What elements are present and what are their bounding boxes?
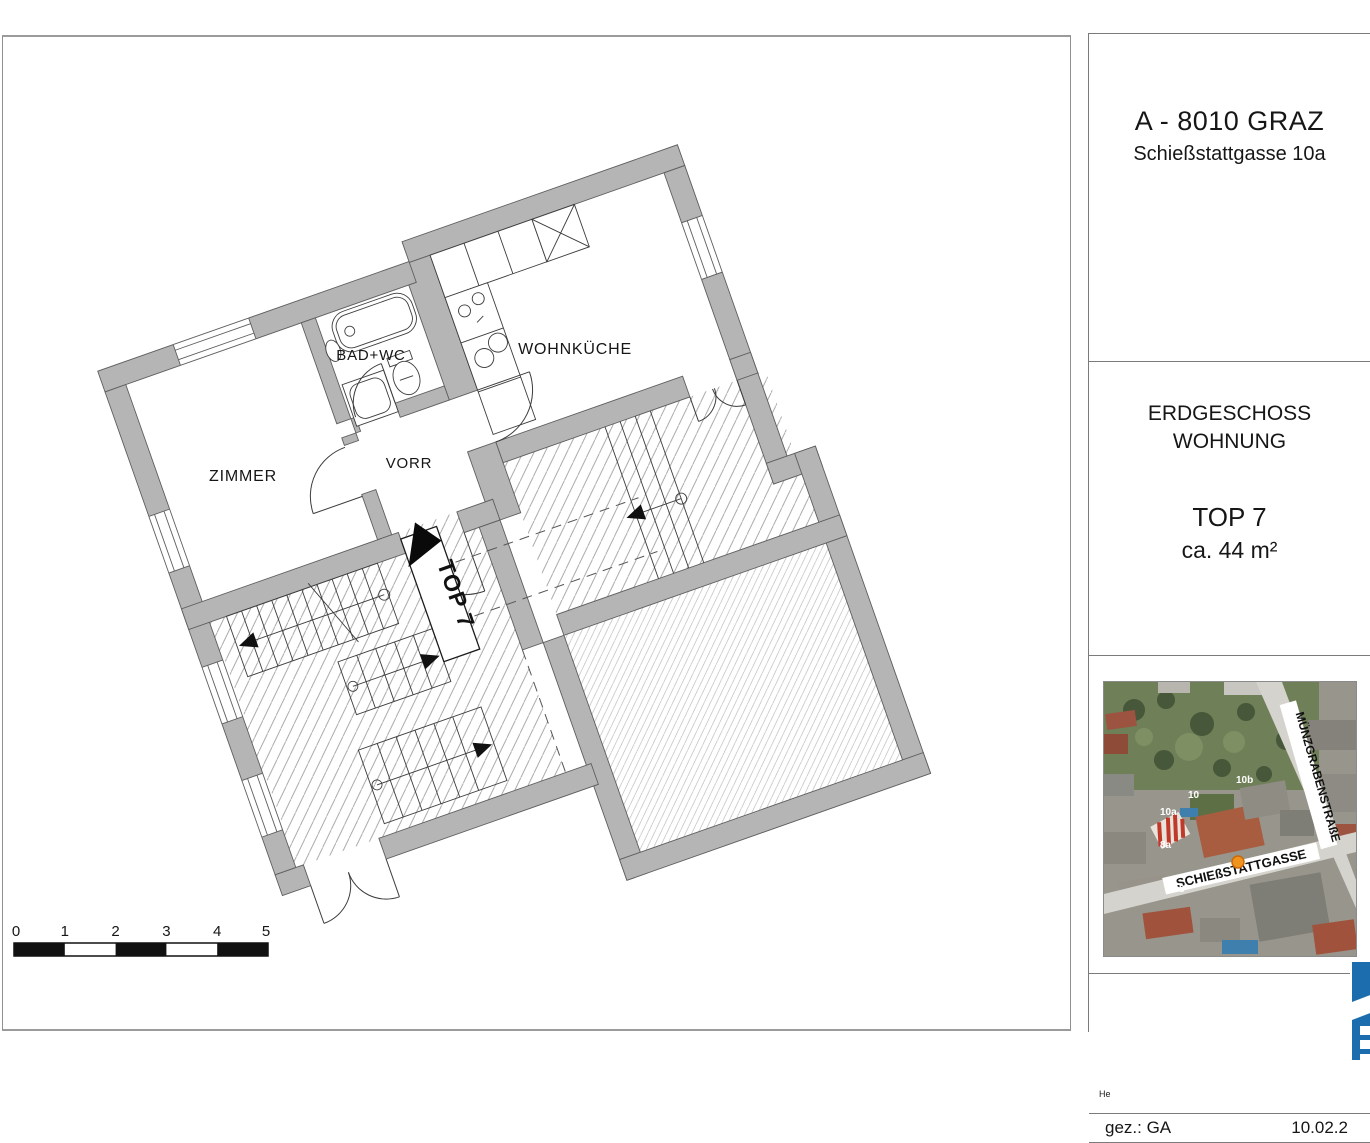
address-city: A - 8010 GRAZ	[1089, 106, 1370, 137]
map-number-10b: 10b	[1236, 775, 1253, 786]
map-number-10a: 10a	[1160, 807, 1177, 818]
date-label: 10.02.2	[1291, 1118, 1348, 1138]
address-street: Schießstattgasse 10a	[1089, 143, 1370, 166]
unit-info-section: ERDGESCHOSS WOHNUNG TOP 7 ca. 44 m²	[1089, 402, 1370, 656]
map-number-10: 10	[1188, 790, 1200, 801]
scale-tick-1: 1	[61, 923, 69, 940]
floor-label: ERDGESCHOSS	[1089, 402, 1370, 426]
scale-tick-2: 2	[111, 923, 119, 940]
scale-tick-5: 5	[262, 923, 270, 940]
signature-row: gez.: GA 10.02.2	[1089, 1114, 1370, 1143]
map-number-8a: 8a	[1160, 840, 1172, 851]
floorplan-document: { "title_block": { "address_line1": "A -…	[0, 0, 1370, 1060]
company-logo	[1350, 962, 1370, 1060]
room-label-zimmer: ZIMMER	[209, 468, 277, 485]
location-map-section: SCHIEßSTATTGASSE MÜNZGRABENSTRAßE 10b 10…	[1089, 656, 1370, 974]
unit-area: ca. 44 m²	[1089, 537, 1370, 564]
aerial-map: SCHIEßSTATTGASSE MÜNZGRABENSTRAßE 10b 10…	[1103, 681, 1357, 957]
notes-section: He	[1089, 974, 1370, 1114]
plan-rotated-group: TOP 7	[89, 135, 931, 991]
room-label-vorr: VORR	[386, 455, 433, 472]
map-number-8: 8	[1179, 884, 1185, 895]
floor-plan-drawing: TOP 7 ZIMMER BAD+WC VORR WOHNKÜCHE 0 1 2…	[0, 35, 1073, 1032]
scale-tick-3: 3	[162, 923, 170, 940]
address-section: A - 8010 GRAZ Schießstattgasse 10a	[1089, 106, 1370, 362]
title-block-panel: A - 8010 GRAZ Schießstattgasse 10a ERDGE…	[1088, 33, 1370, 1032]
room-label-bad-wc: BAD+WC	[336, 347, 405, 364]
map-location-marker	[1232, 856, 1244, 868]
drawn-by-label: gez.: GA	[1105, 1118, 1171, 1138]
scale-bar: 0 1 2 3 4 5	[12, 923, 270, 956]
scale-tick-4: 4	[213, 923, 221, 940]
unit-number: TOP 7	[1089, 502, 1370, 533]
room-label-wohnkueche: WOHNKÜCHE	[518, 340, 632, 358]
dwelling-label: WOHNUNG	[1089, 430, 1370, 454]
fine-print-note: He	[1099, 1089, 1111, 1099]
scale-tick-0: 0	[12, 923, 20, 940]
